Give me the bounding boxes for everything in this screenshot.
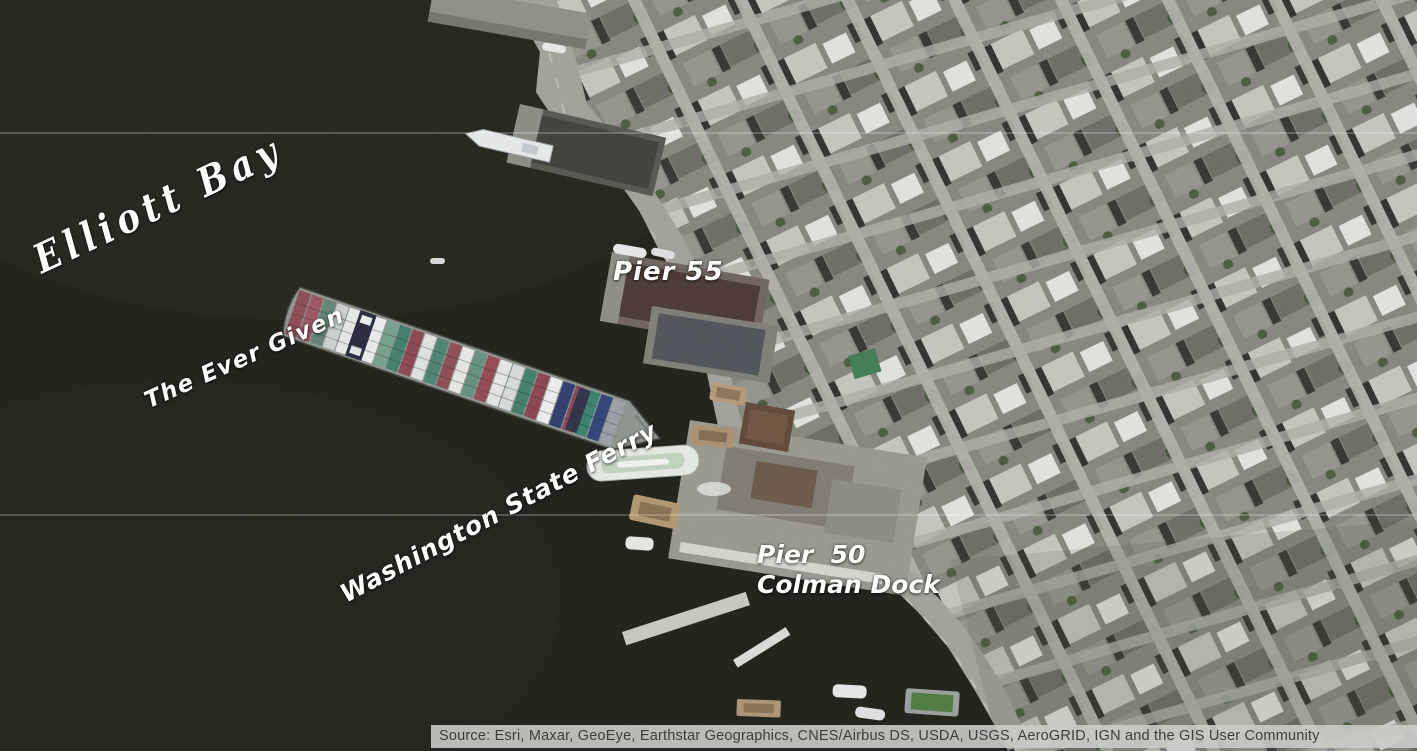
map-source-attribution: Source: Esri, Maxar, GeoEye, Earthstar G… — [431, 725, 1417, 748]
map-imagery — [0, 0, 1417, 751]
image-grain-overlay — [0, 0, 1417, 751]
satellite-map-canvas[interactable]: Elliott Bay The Ever Given Pier 55 Washi… — [0, 0, 1417, 751]
